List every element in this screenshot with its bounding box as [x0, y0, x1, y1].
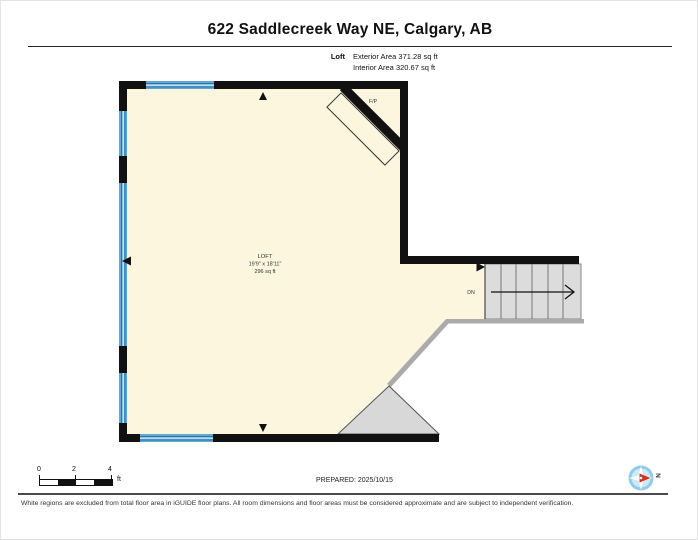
scale-bar-segments [39, 479, 113, 486]
footer-divider [18, 493, 668, 495]
window-left-upper [119, 111, 127, 156]
scale-tick-2: 2 [72, 466, 76, 473]
compass-north-label: N [654, 473, 661, 478]
room-area: 296 sq ft [254, 269, 276, 275]
scale-bar: 0 2 4 ft [39, 466, 134, 488]
floorplan-page: 622 Saddlecreek Way NE, Calgary, AB Loft… [0, 0, 698, 540]
wall-stair-top [400, 256, 579, 264]
stair-underside-wall [446, 319, 584, 324]
window-left-middle [119, 183, 127, 346]
fireplace-label: F/P [369, 99, 378, 105]
room-name: LOFT [258, 254, 273, 260]
room-dimensions: 19'9" x 18'11" [249, 262, 282, 268]
scale-unit: ft [117, 476, 121, 483]
window-bottom [140, 434, 213, 442]
scale-tick-4: 4 [108, 466, 112, 473]
floorplan-drawing: LOFT 19'9" x 18'11" 296 sq ft DN F/P [1, 1, 698, 540]
disclaimer-text: White regions are excluded from total fl… [21, 500, 681, 507]
staircase [485, 264, 581, 319]
prepared-date: PREPARED: 2025/10/15 [316, 477, 393, 484]
scale-tick-0: 0 [37, 466, 41, 473]
window-top [146, 81, 214, 89]
window-left-lower [119, 373, 127, 423]
wall-right [400, 81, 408, 264]
stairs-down-label: DN [467, 290, 475, 296]
